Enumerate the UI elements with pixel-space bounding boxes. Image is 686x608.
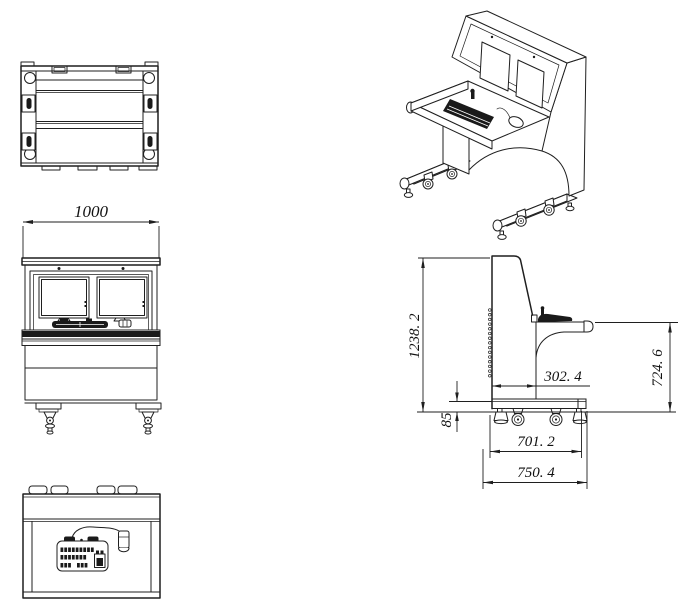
side-view: 1238. 2 85 302. 4 724. 6: [407, 256, 678, 489]
dim-front-width: 1000: [74, 202, 109, 221]
screw: [58, 267, 61, 270]
foot-pad: [118, 486, 137, 494]
caster-mount: [22, 133, 35, 150]
leveling-foot-rear: [494, 409, 508, 424]
back-zipper: [489, 309, 492, 377]
caster-mount: [144, 95, 157, 112]
isometric-view: [400, 11, 586, 239]
keyboard: [52, 319, 108, 329]
svg-text:1238. 2: 1238. 2: [407, 313, 423, 359]
caster-foot-left: [36, 403, 61, 434]
outrigger-right: [493, 194, 577, 239]
corner-post: [144, 73, 155, 84]
caster-side-2: [550, 409, 562, 426]
base-frame: [492, 399, 586, 409]
screw: [122, 267, 125, 270]
screw: [491, 36, 493, 38]
power-connector: [57, 537, 108, 572]
bottom-view: [23, 486, 160, 598]
technical-drawing-canvas: 1000: [0, 0, 686, 608]
top-view: [21, 62, 158, 170]
monitor-right: [97, 277, 147, 321]
keyboard-side: [538, 306, 572, 322]
foot-pad: [97, 486, 115, 494]
screw: [533, 56, 535, 58]
front-view: 1000: [22, 202, 161, 434]
svg-text:85: 85: [439, 412, 455, 428]
caster-side-1: [512, 409, 524, 426]
dim-total-height: 1238. 2: [407, 258, 490, 412]
dim-base-height: 85: [439, 381, 492, 432]
monitor-left: [39, 277, 89, 321]
caster-mount: [144, 133, 157, 150]
desk-shelf: [22, 330, 160, 346]
drawing-page: 1000: [0, 0, 686, 608]
svg-text:701. 2: 701. 2: [517, 434, 555, 450]
dim-worktop-height: 724. 6: [595, 323, 678, 413]
corner-post: [25, 73, 36, 84]
width-dimension: 1000: [23, 202, 159, 258]
leveling-foot-front: [573, 409, 587, 424]
power-plug: [119, 531, 130, 552]
caster-foot-right: [136, 403, 161, 434]
foot-pad: [29, 486, 47, 494]
foot-pad: [51, 486, 68, 494]
mouse: [119, 320, 131, 327]
dim-knee-depth: 302. 4: [492, 369, 590, 388]
svg-text:724. 6: 724. 6: [650, 349, 666, 387]
caster-mount: [22, 95, 35, 112]
desk-lip: [584, 321, 593, 332]
svg-text:750. 4: 750. 4: [517, 465, 555, 481]
under-desk-arch: [469, 148, 542, 170]
svg-text:302. 4: 302. 4: [543, 369, 582, 385]
